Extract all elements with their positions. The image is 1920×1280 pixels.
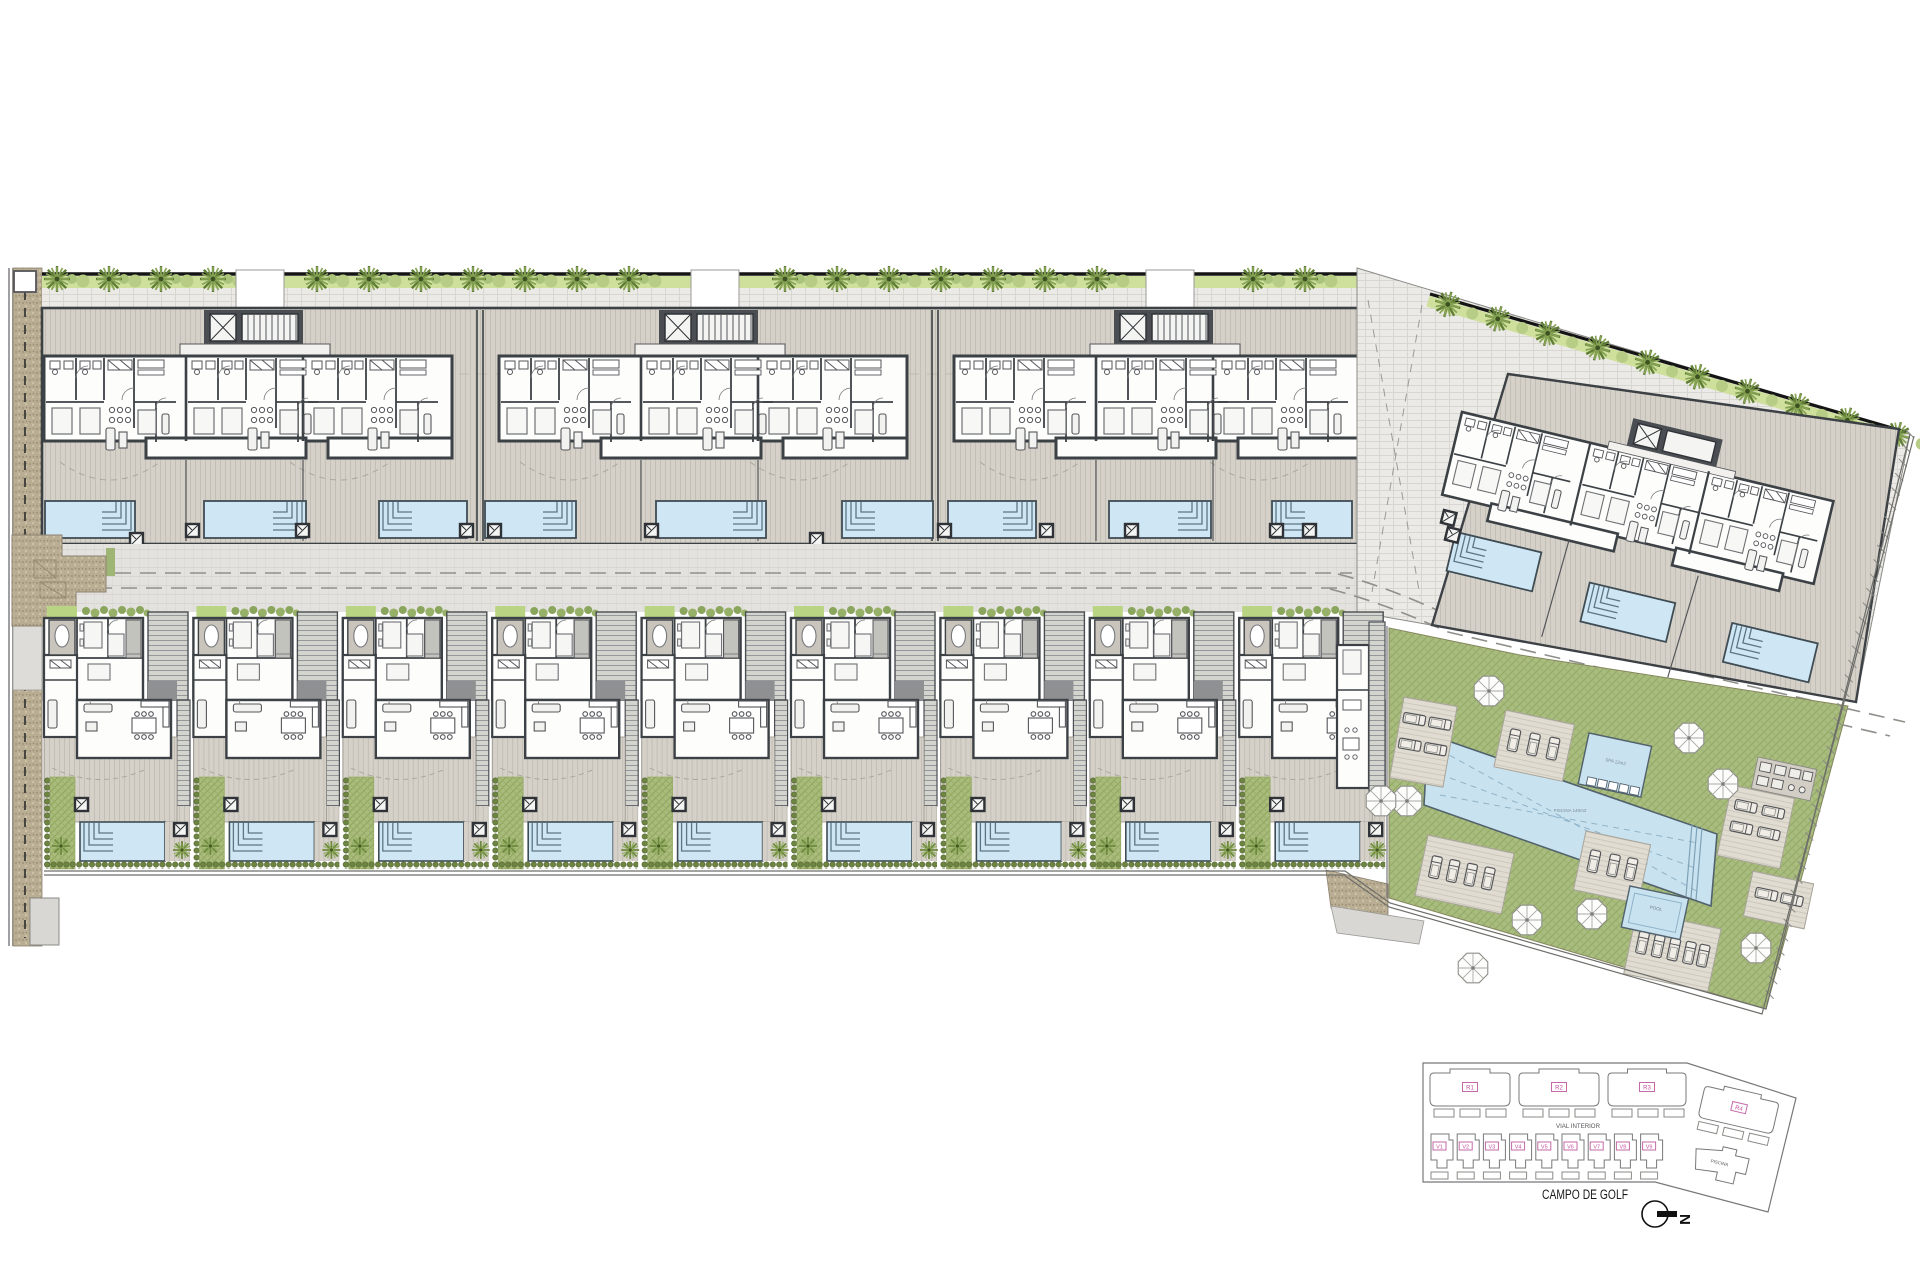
svg-text:R3: R3: [1643, 1086, 1651, 1092]
svg-text:V5: V5: [1541, 1145, 1548, 1151]
svg-text:V1: V1: [1436, 1145, 1443, 1151]
svg-text:V2: V2: [1462, 1145, 1469, 1151]
svg-text:V6: V6: [1567, 1145, 1574, 1151]
svg-text:VIAL INTERIOR: VIAL INTERIOR: [1556, 1124, 1601, 1130]
svg-text:V8: V8: [1620, 1145, 1627, 1151]
svg-text:V9: V9: [1646, 1145, 1653, 1151]
svg-text:V4: V4: [1515, 1145, 1522, 1151]
svg-text:CAMPO DE GOLF: CAMPO DE GOLF: [1542, 1187, 1628, 1202]
svg-text:R2: R2: [1555, 1086, 1563, 1092]
svg-text:V7: V7: [1593, 1145, 1600, 1151]
svg-text:R1: R1: [1466, 1086, 1474, 1092]
svg-text:N: N: [1676, 1214, 1693, 1225]
svg-text:PISCINA 140m2: PISCINA 140m2: [1554, 808, 1587, 813]
svg-text:V3: V3: [1489, 1145, 1496, 1151]
